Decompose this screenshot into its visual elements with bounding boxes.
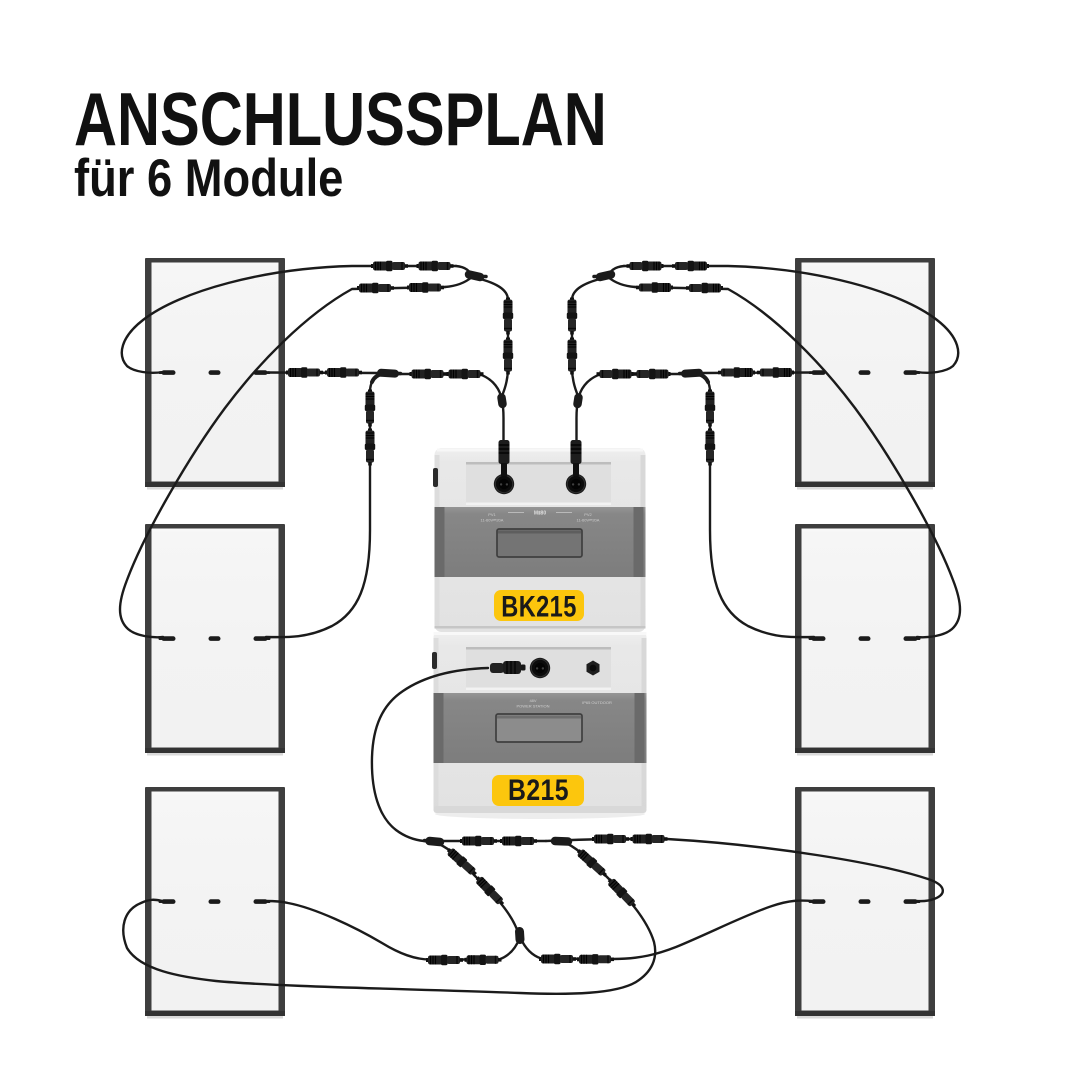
svg-text:MⅡ80: MⅡ80 [534,510,546,517]
svg-text:B215: B215 [508,773,569,807]
svg-text:BK215: BK215 [501,590,576,623]
svg-text:48V: 48V [529,698,536,703]
svg-text:POWER STATION: POWER STATION [517,704,550,709]
svg-text:IP65 OUTDOOR: IP65 OUTDOOR [582,700,612,705]
svg-text:11-60V⎓20A: 11-60V⎓20A [577,518,600,523]
svg-text:11-60V⎓20A: 11-60V⎓20A [481,518,504,523]
svg-text:PV2: PV2 [584,512,592,517]
svg-text:PV1: PV1 [488,512,496,517]
